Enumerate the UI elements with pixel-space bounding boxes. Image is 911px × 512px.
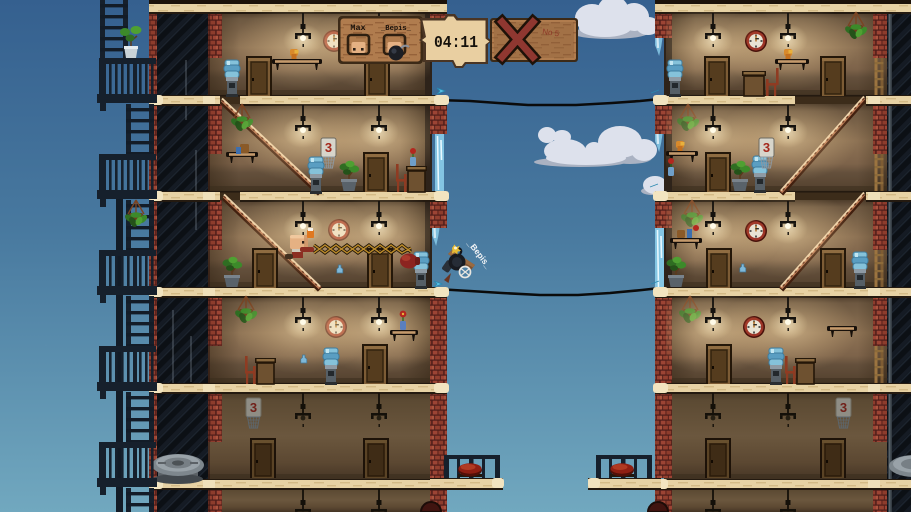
- svg-text:3: 3: [840, 400, 847, 415]
- svg-text:3: 3: [763, 140, 770, 155]
- svg-text:3: 3: [325, 140, 332, 155]
- svg-text:04:11: 04:11: [434, 34, 478, 53]
- svg-text:_Bepis_: _Bepis_: [380, 25, 412, 33]
- svg-text:Max: Max: [350, 23, 365, 33]
- svg-text:3: 3: [250, 400, 257, 415]
